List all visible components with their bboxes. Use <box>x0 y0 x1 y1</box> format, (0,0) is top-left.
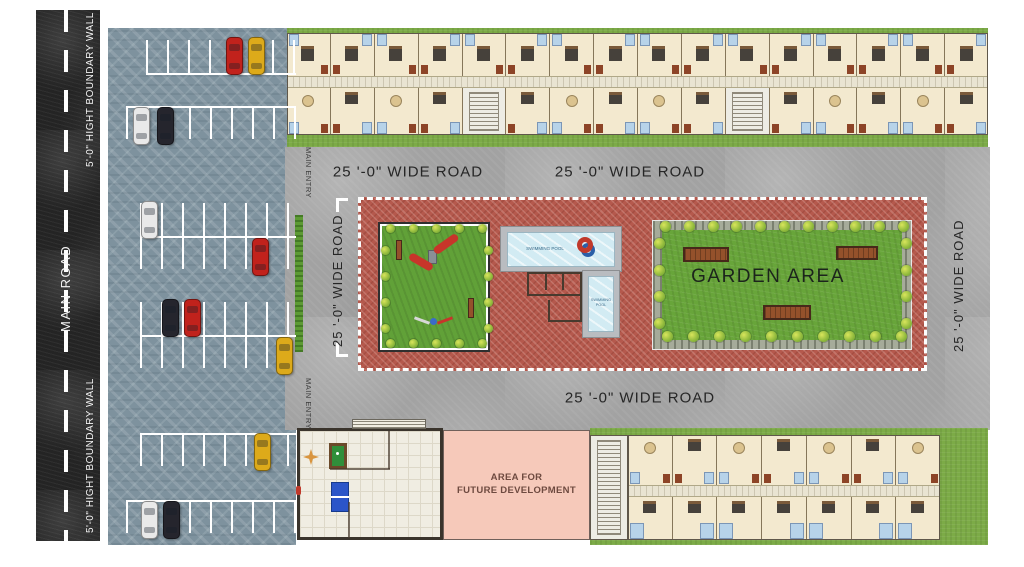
car-windshield <box>187 306 198 313</box>
parking-stall-line <box>146 40 148 73</box>
kitchen <box>584 124 591 133</box>
apartment-unit <box>374 88 418 135</box>
bed <box>688 439 701 451</box>
bathroom <box>976 34 986 46</box>
tree <box>484 246 493 255</box>
apartment-unit <box>716 435 761 485</box>
kitchen <box>947 65 954 74</box>
bathroom <box>377 122 387 134</box>
bathroom <box>728 34 738 46</box>
kitchen <box>672 65 679 74</box>
kitchen <box>508 124 515 133</box>
bathroom <box>801 34 811 46</box>
car-rear-window <box>251 63 262 69</box>
bathroom <box>816 34 826 46</box>
bathroom <box>362 122 372 134</box>
bedroom <box>898 523 912 539</box>
dining-table <box>733 442 745 454</box>
tree <box>755 221 766 232</box>
bed <box>866 501 879 513</box>
kitchen <box>847 65 854 74</box>
dining-table <box>566 95 578 107</box>
apartment-unit <box>681 33 725 76</box>
bathroom <box>377 34 387 46</box>
bathroom <box>640 34 650 46</box>
kitchen <box>321 65 328 74</box>
parking-stall-line <box>294 500 296 533</box>
tree <box>803 221 814 232</box>
apartment-unit <box>851 435 896 485</box>
apartment-unit <box>900 33 944 76</box>
bed <box>301 46 314 61</box>
stair-lobby <box>725 88 769 135</box>
parking-stall-line <box>210 106 212 139</box>
changing-room-wall <box>548 300 550 322</box>
kitchen <box>772 124 779 133</box>
apartment-unit <box>895 435 940 485</box>
bed <box>345 46 358 61</box>
dining-table <box>653 95 665 107</box>
dining-table <box>912 442 924 454</box>
kitchen <box>496 65 503 74</box>
parking-stall-line <box>287 433 289 466</box>
apartment-unit <box>374 33 418 76</box>
changing-room-wall <box>527 294 582 296</box>
apartment-unit <box>549 88 593 135</box>
apartment-unit <box>593 33 637 76</box>
parking-stall-line <box>161 203 163 269</box>
kids-pool-label: SWIMMING POOL <box>586 298 616 307</box>
parking-stall-line <box>167 40 169 73</box>
tree <box>874 221 885 232</box>
tree <box>901 238 912 249</box>
bed <box>477 46 490 61</box>
bed <box>696 92 709 104</box>
bed <box>345 92 358 104</box>
apartment-unit <box>505 88 549 135</box>
car-rear-window <box>165 325 176 331</box>
bed <box>521 92 534 104</box>
apartment-unit <box>769 33 813 76</box>
apartment-unit <box>856 88 900 135</box>
kitchen <box>675 474 682 483</box>
dining-table <box>829 95 841 107</box>
person-figure <box>296 486 301 495</box>
kitchen <box>421 65 428 74</box>
kitchen <box>772 65 779 74</box>
corridor <box>287 76 988 88</box>
bathroom <box>450 34 460 46</box>
bathroom <box>552 34 562 46</box>
parking-stall-line <box>272 40 274 73</box>
car-yellow <box>248 37 265 75</box>
apartment-unit <box>637 33 681 76</box>
changing-room-wall <box>545 272 547 290</box>
tree <box>792 331 803 342</box>
car-white <box>141 501 158 539</box>
tree <box>484 298 493 307</box>
parking-stall-line <box>189 500 191 533</box>
car-rear-window <box>257 459 268 465</box>
bathroom <box>816 122 826 134</box>
kitchen <box>321 124 328 133</box>
kitchen <box>663 474 670 483</box>
tree <box>484 324 493 333</box>
parking-stall-line <box>210 500 212 533</box>
garden-bench <box>763 305 811 320</box>
car-rear-window <box>136 133 147 139</box>
bed <box>696 46 709 61</box>
kitchen <box>935 65 942 74</box>
car-black <box>163 501 180 539</box>
car-windshield <box>144 508 155 515</box>
bed <box>609 46 622 61</box>
changing-room-wall <box>562 272 564 290</box>
tree <box>898 221 909 232</box>
kitchen <box>684 65 691 74</box>
tree <box>896 331 907 342</box>
bed <box>433 46 446 61</box>
car-rear-window <box>160 133 171 139</box>
tree <box>844 331 855 342</box>
clubhouse-wall <box>348 502 350 538</box>
kitchen <box>333 65 340 74</box>
car-rear-window <box>279 363 290 369</box>
bed <box>565 46 578 61</box>
bathroom <box>713 34 723 46</box>
bed <box>609 92 622 104</box>
tree <box>381 246 390 255</box>
tree <box>484 272 493 281</box>
car-windshield <box>144 208 155 215</box>
billiards-table <box>329 443 347 469</box>
tree <box>766 331 777 342</box>
road-label-top-right: 25 '-0" WIDE ROAD <box>555 164 705 181</box>
tree <box>714 331 725 342</box>
apartment-unit <box>761 497 806 540</box>
parking-stall-line <box>245 203 247 269</box>
car-windshield <box>279 344 290 351</box>
garden-bench <box>683 247 729 262</box>
changing-room-wall <box>527 272 529 296</box>
kitchen <box>859 124 866 133</box>
tree <box>818 331 829 342</box>
apartment-unit <box>813 88 857 135</box>
parking-stall-line <box>245 433 247 466</box>
bedroom <box>719 523 733 539</box>
bathroom <box>640 122 650 134</box>
tree <box>870 331 881 342</box>
car-black <box>157 107 174 145</box>
parking-stall-line <box>182 433 184 466</box>
bed <box>960 46 973 61</box>
car-windshield <box>136 114 147 121</box>
bathroom <box>713 122 723 134</box>
hedge-strip <box>295 215 303 352</box>
tree <box>901 318 912 329</box>
bathroom <box>625 122 635 134</box>
billiards-ball <box>336 452 339 455</box>
changing-room-wall <box>548 320 582 322</box>
car-rear-window <box>187 325 198 331</box>
kitchen <box>508 65 515 74</box>
parking-stall-line <box>146 73 296 75</box>
bed <box>822 501 835 513</box>
bed <box>828 46 841 61</box>
kitchen <box>596 124 603 133</box>
tree <box>731 221 742 232</box>
bedroom <box>700 523 714 539</box>
tree <box>432 339 441 348</box>
parking-stall-line <box>294 106 296 139</box>
bedroom <box>790 523 804 539</box>
play-bench <box>468 298 474 318</box>
parking-stall-line <box>231 106 233 139</box>
tree <box>654 265 665 276</box>
apartment-unit <box>628 497 672 540</box>
dining-table <box>390 95 402 107</box>
garden-label: GARDEN AREA <box>691 266 845 288</box>
apartment-unit <box>628 435 672 485</box>
tree <box>662 331 673 342</box>
kitchen <box>847 124 854 133</box>
tree <box>660 221 671 232</box>
main-entry-label-bottom: MAIN ENTRY <box>304 378 313 429</box>
parking-stall-line <box>203 203 205 269</box>
dining-table <box>823 442 835 454</box>
car-black <box>162 299 179 337</box>
bathroom <box>888 34 898 46</box>
bathroom <box>903 34 913 46</box>
parking-stall-line <box>224 302 226 368</box>
parking-stall-line <box>287 203 289 269</box>
bathroom <box>809 472 819 484</box>
kitchen <box>409 124 416 133</box>
parking-stall-line <box>209 40 211 73</box>
tree <box>779 221 790 232</box>
parking-stall-line <box>189 106 191 139</box>
clubhouse <box>297 428 443 540</box>
tree <box>654 318 665 329</box>
car-windshield <box>165 306 176 313</box>
car-rear-window <box>255 264 266 270</box>
bathroom <box>537 122 547 134</box>
bed <box>732 501 745 513</box>
bed <box>433 92 446 104</box>
kitchen <box>764 474 771 483</box>
apartment-unit <box>761 435 806 485</box>
car-rear-window <box>144 227 155 233</box>
apartment-unit <box>681 88 725 135</box>
bed <box>916 46 929 61</box>
bed <box>777 501 790 513</box>
bedroom <box>879 523 893 539</box>
clubhouse-wall <box>388 431 390 469</box>
apartment-unit <box>593 88 637 135</box>
parking-stall-line <box>231 500 233 533</box>
road-label-right-vertical: 25 '-0" WIDE ROAD <box>951 220 966 352</box>
clubhouse-steps <box>352 419 426 429</box>
bathroom <box>883 472 893 484</box>
bed <box>688 501 701 513</box>
changing-room-wall <box>527 272 582 274</box>
kitchen <box>859 65 866 74</box>
car-windshield <box>257 440 268 447</box>
bathroom <box>625 34 635 46</box>
parking-stall-line <box>293 40 295 73</box>
apartment-unit <box>637 88 681 135</box>
kitchen <box>584 65 591 74</box>
tree <box>455 224 464 233</box>
main-entry-label-top: MAIN ENTRY <box>304 147 313 198</box>
apartment-unit <box>806 497 851 540</box>
bathroom <box>465 34 475 46</box>
tree <box>654 291 665 302</box>
bed <box>643 501 656 513</box>
apartment-unit <box>769 88 813 135</box>
tree <box>432 224 441 233</box>
parking-stall-line <box>140 433 296 435</box>
apartment-unit <box>856 33 900 76</box>
kitchen <box>931 474 938 483</box>
corridor <box>628 485 940 497</box>
car-red <box>252 238 269 276</box>
car-white <box>141 201 158 239</box>
bathroom <box>362 34 372 46</box>
apartment-unit <box>418 88 462 135</box>
tree <box>901 265 912 276</box>
apartment-unit <box>672 497 717 540</box>
bed <box>784 46 797 61</box>
kitchen <box>842 474 849 483</box>
parking-stall-line <box>203 433 205 466</box>
bathroom <box>801 122 811 134</box>
bathroom <box>630 472 640 484</box>
parking-stall-line <box>273 106 275 139</box>
parking-stall-line <box>224 203 226 269</box>
kitchen <box>596 65 603 74</box>
tree <box>409 224 418 233</box>
car-windshield <box>166 508 177 515</box>
bed <box>784 92 797 104</box>
tree <box>688 331 699 342</box>
car-red <box>226 37 243 75</box>
tree <box>381 272 390 281</box>
main-road-label: MAIN ROAD <box>58 245 73 332</box>
tree <box>478 339 487 348</box>
dining-table <box>917 95 929 107</box>
staircase <box>469 92 500 131</box>
tree <box>654 238 665 249</box>
apartment-unit <box>900 88 944 135</box>
bed <box>389 46 402 61</box>
tree <box>901 291 912 302</box>
table-tennis-net <box>331 496 349 498</box>
site-plan: SWIMMING POOL SWIMMING POOL GARDEN AREA … <box>0 0 1024 567</box>
boundary-wall-label-bottom: 5'-0" HIGHT BOUNDARY WALL <box>85 378 96 533</box>
tree <box>386 339 395 348</box>
future-development-label: AREA FOR FUTURE DEVELOPMENT <box>457 472 576 498</box>
apartment-unit <box>806 435 851 485</box>
bathroom <box>903 122 913 134</box>
bathroom <box>719 472 729 484</box>
parking-stall-line <box>126 106 128 139</box>
tree <box>684 221 695 232</box>
changing-room-wall <box>580 272 582 322</box>
tree <box>386 224 395 233</box>
bathroom <box>450 122 460 134</box>
apartment-unit <box>813 33 857 76</box>
bed <box>911 501 924 513</box>
car-windshield <box>229 44 240 51</box>
bed <box>960 92 973 104</box>
parking-stall-line <box>273 500 275 533</box>
car-windshield <box>160 114 171 121</box>
play-bench <box>396 240 402 260</box>
car-windshield <box>255 245 266 252</box>
pool-label: SWIMMING POOL <box>520 246 570 251</box>
tree <box>478 224 487 233</box>
kitchen <box>854 474 861 483</box>
parking-stall-line <box>266 302 268 368</box>
bedroom <box>630 523 644 539</box>
bedroom <box>809 523 823 539</box>
apartment-unit <box>330 88 374 135</box>
parking-stall-line <box>252 106 254 139</box>
kitchen <box>752 474 759 483</box>
bathroom <box>552 122 562 134</box>
future-development-area: AREA FOR FUTURE DEVELOPMENT <box>443 430 590 540</box>
kitchen <box>333 124 340 133</box>
parking-stall-line <box>203 302 205 368</box>
kitchen <box>409 65 416 74</box>
apartment-unit <box>895 497 940 540</box>
parking-stall-line <box>140 433 142 466</box>
bathroom <box>794 472 804 484</box>
gate-bracket <box>336 198 348 212</box>
kitchen <box>935 124 942 133</box>
parking-stall-line <box>161 433 163 466</box>
kitchen <box>672 124 679 133</box>
bed <box>872 46 885 61</box>
kitchen <box>947 124 954 133</box>
apartment-unit <box>672 435 717 485</box>
parking-stall-line <box>245 302 247 368</box>
building-bottom <box>590 428 988 545</box>
clubhouse-wall <box>330 468 390 470</box>
apartment-unit <box>330 33 374 76</box>
tree <box>409 339 418 348</box>
road-label-bottom: 25 '-0" WIDE ROAD <box>565 390 715 407</box>
parking-stall-line <box>252 500 254 533</box>
road-label-top-left: 25 '-0" WIDE ROAD <box>333 164 483 181</box>
apartment-unit <box>725 33 769 76</box>
dining-table <box>644 442 656 454</box>
tree <box>381 298 390 307</box>
apartment-unit <box>549 33 593 76</box>
car-rear-window <box>166 527 177 533</box>
bathroom <box>704 472 714 484</box>
tree <box>381 324 390 333</box>
bed <box>777 439 790 451</box>
bathroom <box>976 122 986 134</box>
swim-ring <box>577 237 593 253</box>
boundary-wall-label-top: 5'-0" HIGHT BOUNDARY WALL <box>85 12 96 167</box>
kitchen <box>760 65 767 74</box>
stair-lobby <box>462 88 506 135</box>
bed <box>740 46 753 61</box>
bed <box>652 46 665 61</box>
